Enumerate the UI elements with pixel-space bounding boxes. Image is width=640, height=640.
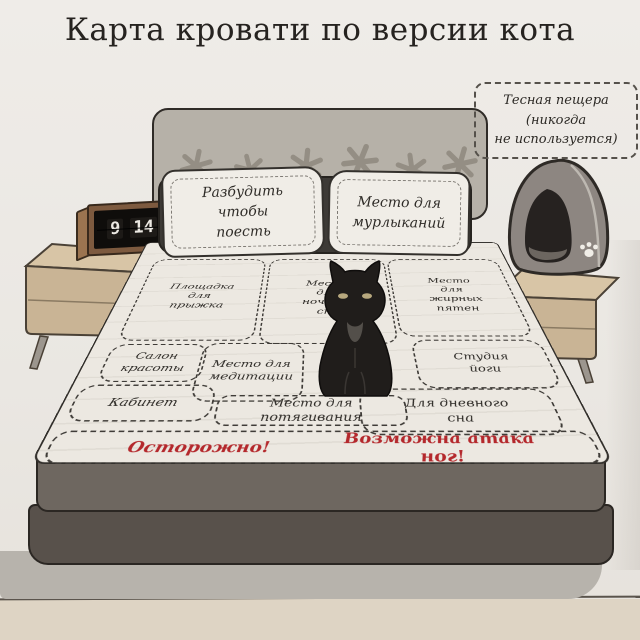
- cat-eye: [362, 293, 372, 299]
- zone-jump-pad: Площадка для прыжка: [117, 259, 267, 341]
- page-title: Карта кровати по версии кота: [0, 12, 640, 48]
- cave-label-line: (никогда: [480, 111, 632, 131]
- zone-grease-spots: Место для жирных пятен: [386, 259, 534, 336]
- mattress-base-lower: [28, 504, 614, 565]
- zone-label: Место для жирных пятен: [423, 277, 486, 314]
- floor: [0, 599, 640, 640]
- cave-label-line: Тесная пещера: [480, 91, 632, 111]
- cat-house: [497, 155, 617, 281]
- cave-label-line: не используется): [480, 130, 632, 150]
- cave-label-box: Тесная пещера (никогда не используется): [474, 82, 638, 159]
- zone-label: Кабинет: [106, 395, 180, 409]
- clock-hour: 9: [107, 218, 123, 240]
- cat-eye: [338, 293, 348, 299]
- pillow-left: Разбудить чтобы поесть: [161, 166, 325, 258]
- black-cat: [305, 256, 407, 402]
- warning-strip: Осторожно! Возможна атака ног!: [40, 431, 606, 464]
- pillow-left-label: Разбудить чтобы поесть: [190, 180, 296, 244]
- zone-beauty-salon: Салон красоты: [95, 344, 209, 382]
- warning-careful-label: Осторожно!: [125, 438, 255, 456]
- pillow-right-label: Место для мурлыканий: [343, 192, 456, 235]
- warning-feet-attack-label: Возможна атака ног!: [336, 429, 552, 465]
- zone-label: Салон красоты: [115, 351, 193, 375]
- zone-label: Место для медитации: [208, 358, 292, 383]
- zone-label: Площадка для прыжка: [161, 282, 235, 310]
- clock-minute: 14: [130, 216, 156, 238]
- bed-map-illustration: Карта кровати по версии кота 9 14: [0, 0, 640, 640]
- zone-yoga-studio: Студия йоги: [410, 340, 563, 389]
- zone-label: Для дневного сна: [389, 396, 533, 425]
- zone-label: Студия йоги: [451, 351, 517, 375]
- pillow-right: Место для мурлыканий: [327, 170, 470, 256]
- zone-office: Кабинет: [63, 385, 217, 422]
